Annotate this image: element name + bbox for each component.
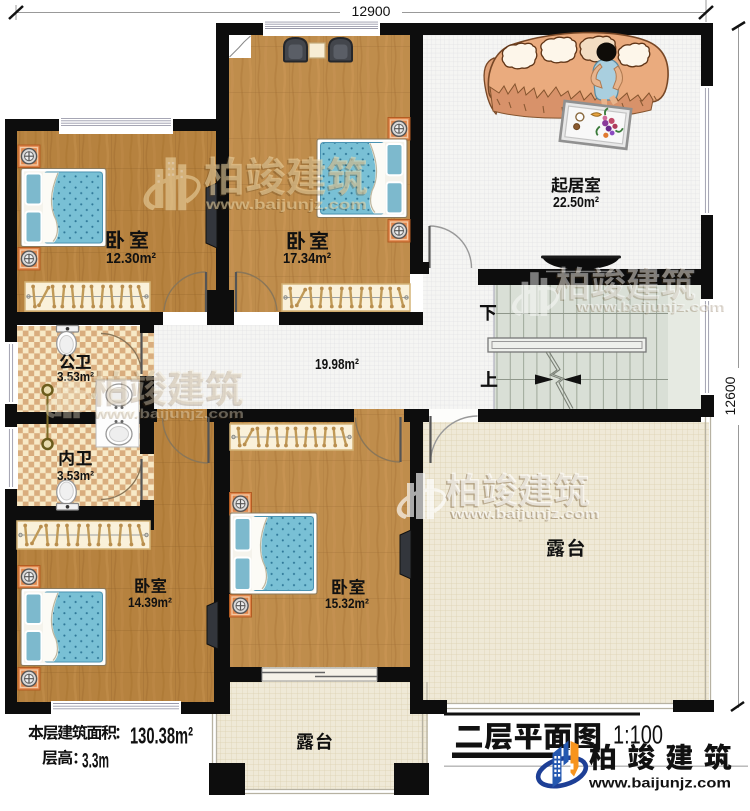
svg-text:www.baijunjz.com: www.baijunjz.com (205, 197, 367, 212)
svg-text:130.38m²: 130.38m² (130, 723, 193, 749)
svg-text:www.baijunjz.com: www.baijunjz.com (94, 407, 244, 421)
svg-text:17.34m²: 17.34m² (283, 250, 331, 267)
svg-text:3.53m²: 3.53m² (57, 468, 95, 483)
svg-text:1:100: 1:100 (613, 720, 663, 750)
svg-text:22.50m²: 22.50m² (553, 194, 599, 211)
svg-text:19.98m²: 19.98m² (315, 356, 359, 373)
svg-text:www.baijunjz.com: www.baijunjz.com (576, 300, 726, 314)
svg-text:3.3m: 3.3m (82, 750, 109, 773)
svg-text:www.baijunjz.com: www.baijunjz.com (450, 507, 600, 521)
svg-text:12.30m²: 12.30m² (106, 250, 156, 267)
svg-text:12600: 12600 (722, 376, 738, 415)
svg-text:www.baijunjz.com: www.baijunjz.com (588, 775, 731, 791)
svg-text:15.32m²: 15.32m² (325, 595, 369, 611)
svg-text:12900: 12900 (352, 3, 391, 19)
svg-text:14.39m²: 14.39m² (128, 594, 172, 610)
